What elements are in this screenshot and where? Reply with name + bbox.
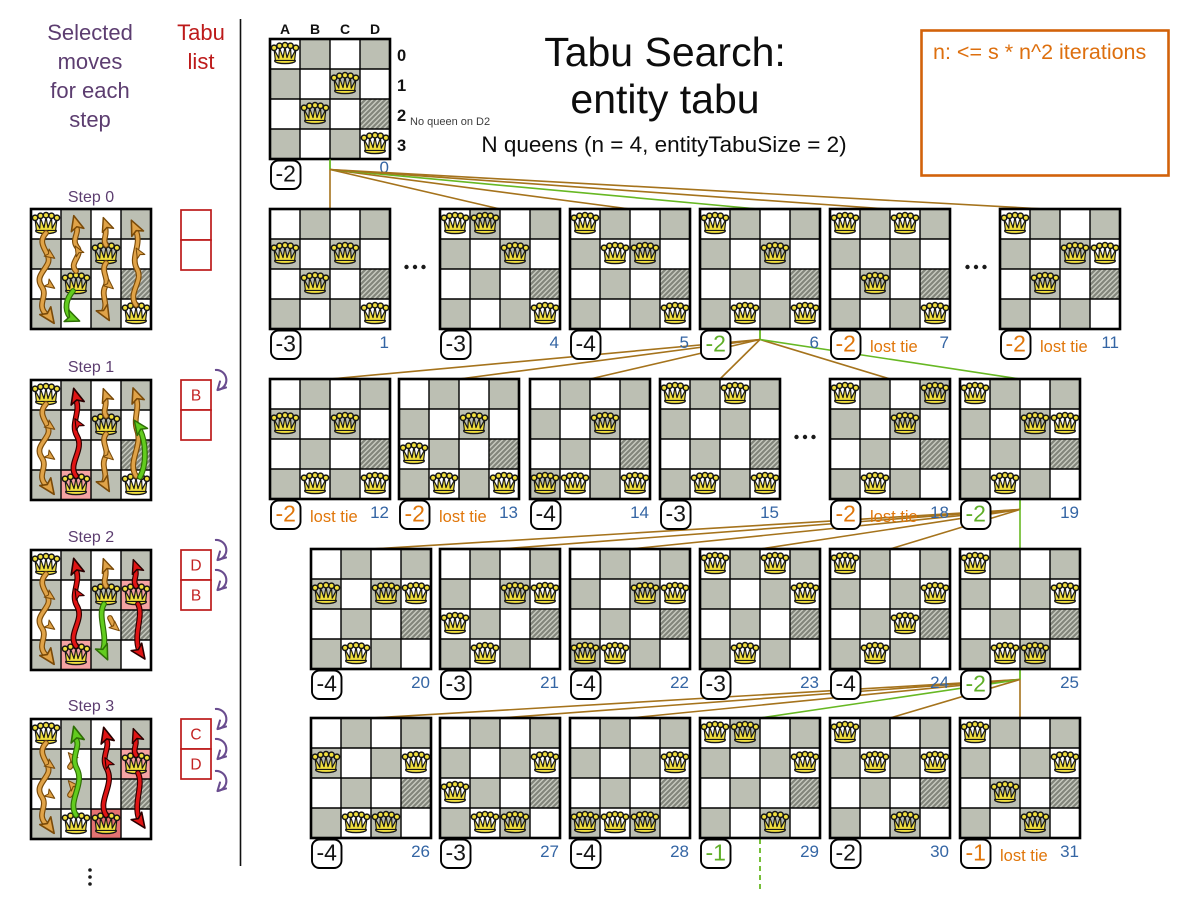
svg-text:lost tie: lost tie xyxy=(870,338,918,356)
svg-text:-4: -4 xyxy=(575,331,596,357)
svg-text:1: 1 xyxy=(380,333,389,352)
svg-text:-3: -3 xyxy=(705,671,725,697)
svg-text:C: C xyxy=(340,21,350,37)
svg-text:Tabu: Tabu xyxy=(177,20,225,45)
svg-text:15: 15 xyxy=(760,503,779,522)
svg-text:-3: -3 xyxy=(665,501,685,527)
svg-text:list: list xyxy=(188,49,215,74)
svg-text:Step 1: Step 1 xyxy=(68,359,114,376)
svg-text:D: D xyxy=(190,558,201,575)
svg-text:C: C xyxy=(190,727,201,744)
svg-text:moves: moves xyxy=(58,49,123,74)
svg-text:-2: -2 xyxy=(965,671,985,697)
svg-text:lost tie: lost tie xyxy=(310,508,358,526)
svg-text:Selected: Selected xyxy=(47,20,133,45)
svg-text:entity tabu: entity tabu xyxy=(570,76,759,122)
svg-text:lost tie: lost tie xyxy=(1040,338,1088,356)
svg-text:-3: -3 xyxy=(445,671,465,697)
svg-text:lost tie: lost tie xyxy=(439,508,487,526)
svg-text:21: 21 xyxy=(540,673,559,692)
svg-text:27: 27 xyxy=(540,842,559,861)
svg-text:Step 2: Step 2 xyxy=(68,529,114,546)
svg-text:-2: -2 xyxy=(835,501,855,527)
svg-text:2: 2 xyxy=(397,107,406,125)
svg-text:-4: -4 xyxy=(835,671,856,697)
svg-text:25: 25 xyxy=(1060,673,1079,692)
svg-text:-2: -2 xyxy=(275,501,295,527)
svg-text:28: 28 xyxy=(670,842,689,861)
svg-text:-2: -2 xyxy=(835,331,855,357)
svg-text:-2: -2 xyxy=(705,331,725,357)
svg-text:-1: -1 xyxy=(705,840,725,866)
svg-text:14: 14 xyxy=(630,503,649,522)
svg-text:6: 6 xyxy=(810,333,819,352)
svg-text:-2: -2 xyxy=(1005,331,1025,357)
svg-text:lost tie: lost tie xyxy=(1000,847,1048,865)
svg-text:-2: -2 xyxy=(835,840,855,866)
svg-text:No queen on D2: No queen on D2 xyxy=(410,116,490,128)
svg-text:Tabu Search:: Tabu Search: xyxy=(544,29,786,75)
svg-text:3: 3 xyxy=(397,137,406,155)
svg-text:-3: -3 xyxy=(275,331,295,357)
svg-text:-4: -4 xyxy=(316,671,337,697)
svg-text:24: 24 xyxy=(930,673,949,692)
svg-text:-3: -3 xyxy=(445,840,465,866)
svg-text:13: 13 xyxy=(499,503,518,522)
svg-text:B: B xyxy=(191,588,201,605)
svg-text:step: step xyxy=(69,107,111,132)
svg-text:n: <= s * n^2 iterations: n: <= s * n^2 iterations xyxy=(933,40,1146,64)
svg-text:lost tie: lost tie xyxy=(870,508,918,526)
svg-text:B: B xyxy=(191,388,201,405)
svg-text:31: 31 xyxy=(1060,842,1079,861)
svg-text:30: 30 xyxy=(930,842,949,861)
svg-text:-2: -2 xyxy=(275,161,295,187)
svg-text:N queens (n = 4, entityTabuSiz: N queens (n = 4, entityTabuSize = 2) xyxy=(481,132,846,157)
svg-text:18: 18 xyxy=(930,503,949,522)
svg-text:-4: -4 xyxy=(316,840,337,866)
svg-text:-4: -4 xyxy=(535,501,556,527)
svg-text:22: 22 xyxy=(670,673,689,692)
svg-text:4: 4 xyxy=(550,333,559,352)
svg-text:20: 20 xyxy=(411,673,430,692)
svg-text:19: 19 xyxy=(1060,503,1079,522)
svg-text:D: D xyxy=(370,21,380,37)
svg-text:7: 7 xyxy=(940,333,949,352)
svg-text:11: 11 xyxy=(1101,333,1119,352)
svg-text:5: 5 xyxy=(680,333,689,352)
svg-text:for each: for each xyxy=(50,78,130,103)
svg-text:-1: -1 xyxy=(965,840,985,866)
svg-text:23: 23 xyxy=(800,673,819,692)
svg-text:-2: -2 xyxy=(965,501,985,527)
svg-text:29: 29 xyxy=(800,842,819,861)
svg-text:-2: -2 xyxy=(404,501,424,527)
svg-text:D: D xyxy=(190,757,201,774)
svg-text:12: 12 xyxy=(370,503,389,522)
svg-text:B: B xyxy=(310,21,320,37)
svg-text:-3: -3 xyxy=(445,331,465,357)
svg-text:-4: -4 xyxy=(575,671,596,697)
svg-text:0: 0 xyxy=(397,47,406,65)
svg-text:-4: -4 xyxy=(575,840,596,866)
svg-text:Step 0: Step 0 xyxy=(68,189,114,206)
svg-text:1: 1 xyxy=(397,77,406,95)
svg-text:A: A xyxy=(280,21,290,37)
svg-text:Step 3: Step 3 xyxy=(68,698,114,715)
svg-text:26: 26 xyxy=(411,842,430,861)
